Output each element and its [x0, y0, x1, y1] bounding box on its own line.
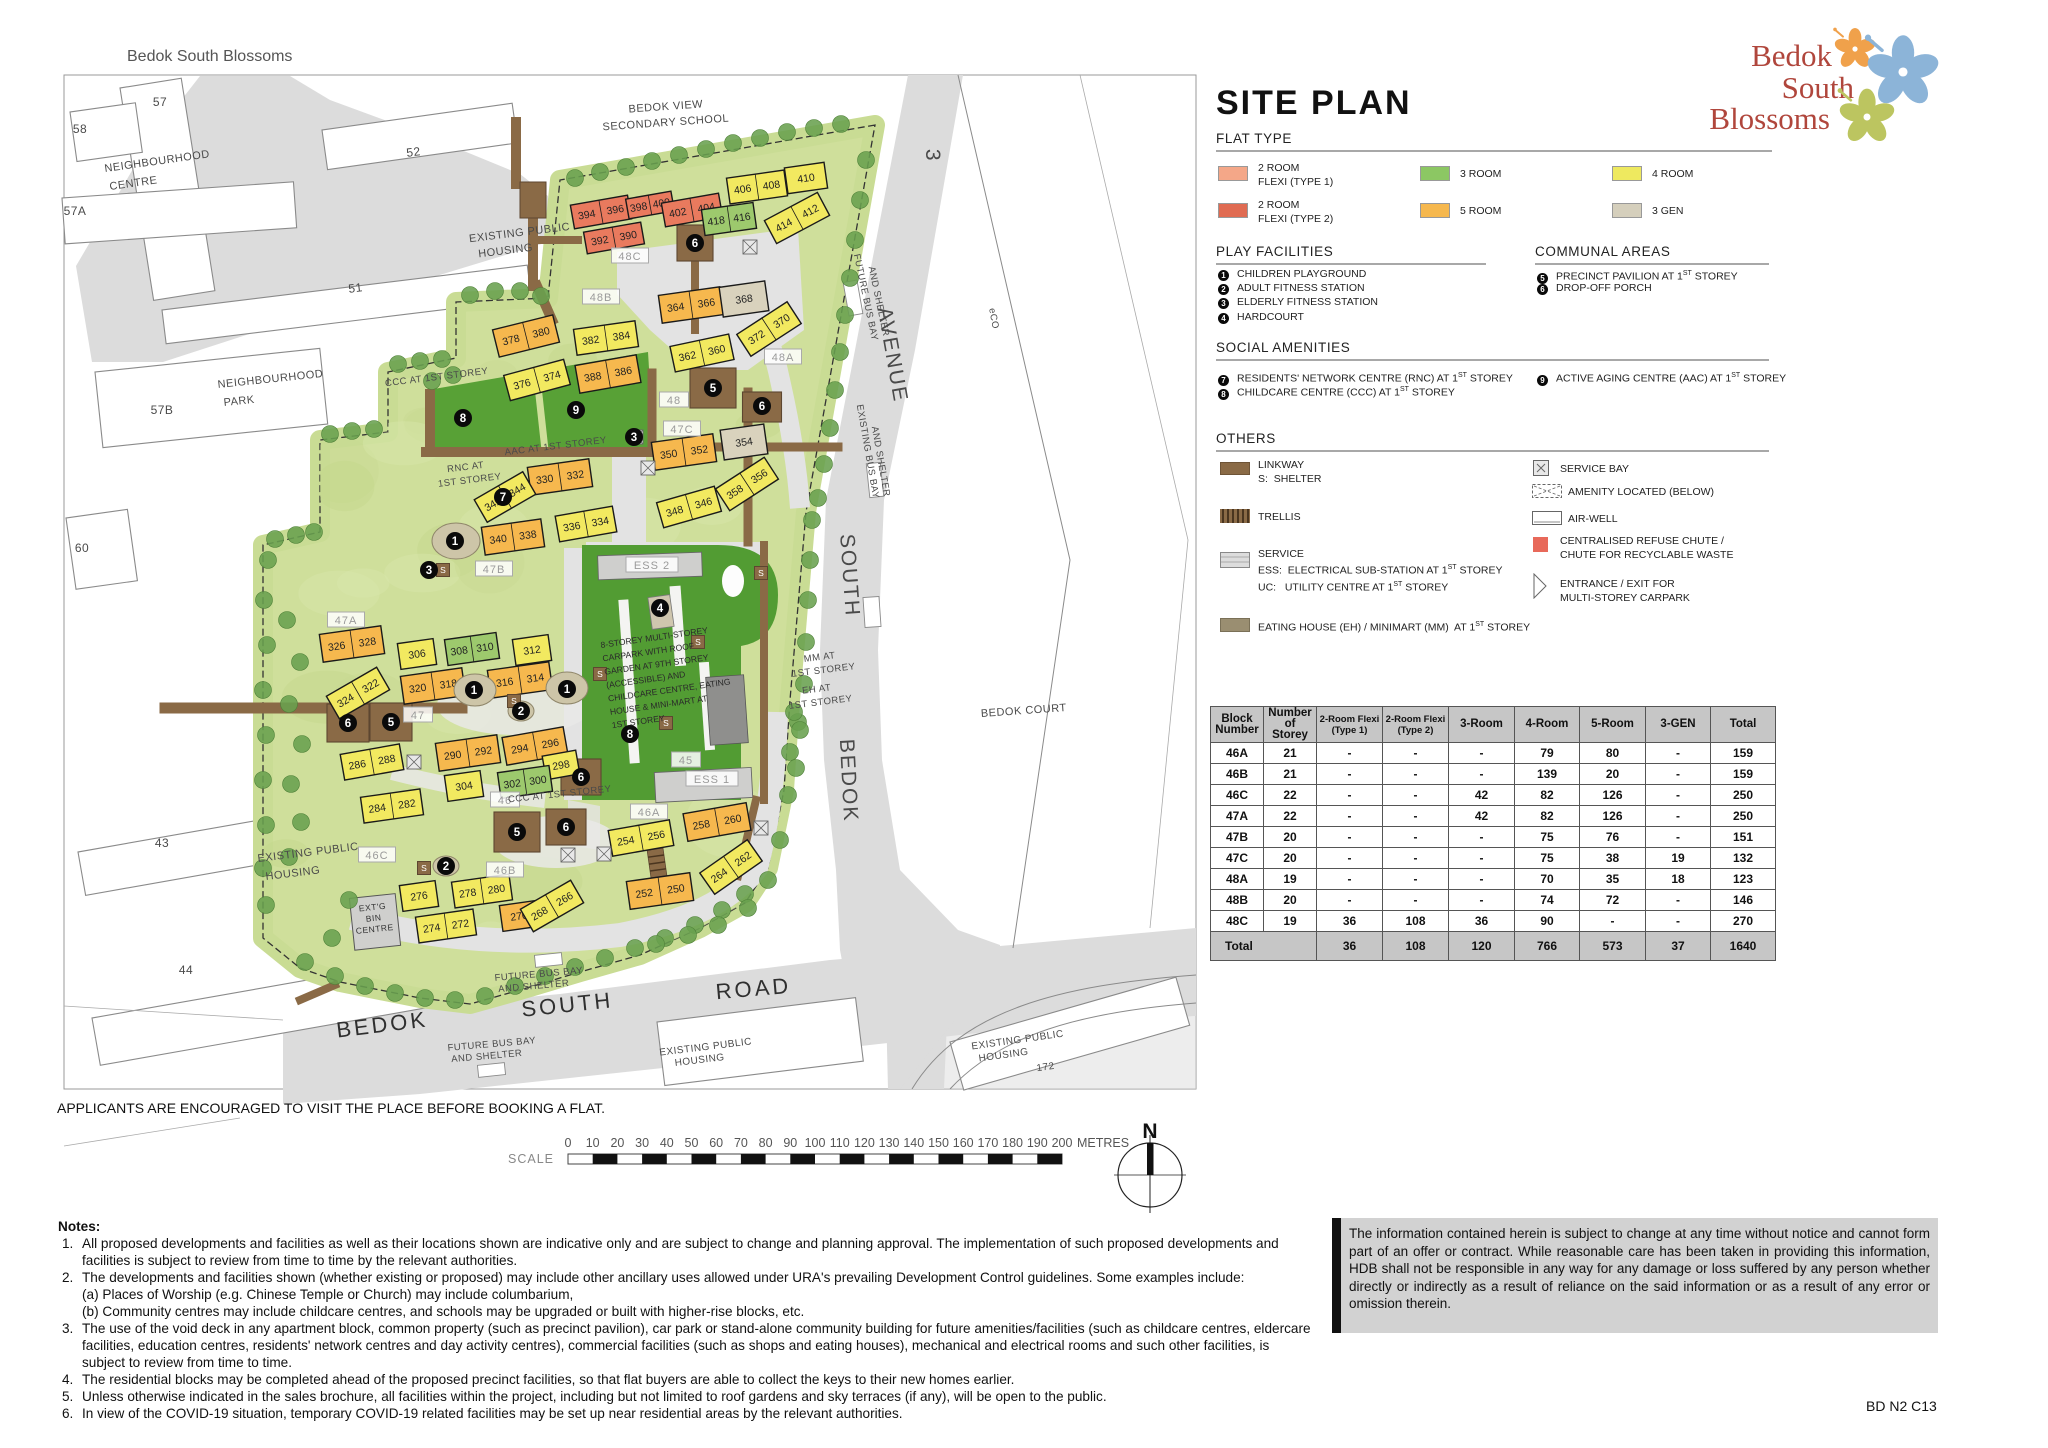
svg-text:330: 330: [535, 473, 554, 487]
svg-text:6: 6: [578, 772, 584, 784]
svg-text:BEDOK: BEDOK: [835, 738, 862, 823]
svg-text:7: 7: [500, 492, 506, 504]
svg-text:350: 350: [659, 448, 678, 462]
svg-text:80: 80: [759, 1136, 773, 1150]
svg-text:S: S: [597, 669, 603, 679]
svg-text:9: 9: [573, 405, 579, 417]
svg-text:8: 8: [627, 729, 634, 741]
svg-text:48C: 48C: [618, 251, 641, 263]
svg-text:44: 44: [179, 963, 193, 977]
svg-text:5: 5: [710, 383, 717, 395]
svg-text:90: 90: [783, 1136, 797, 1150]
svg-text:60: 60: [709, 1136, 723, 1150]
svg-text:20: 20: [610, 1136, 624, 1150]
svg-text:46A: 46A: [638, 807, 661, 819]
svg-text:47: 47: [411, 710, 425, 722]
svg-text:S: S: [758, 568, 764, 578]
svg-text:ESS 2: ESS 2: [634, 560, 670, 572]
svg-text:45: 45: [679, 755, 693, 767]
svg-text:1: 1: [452, 536, 459, 548]
svg-text:0: 0: [565, 1136, 572, 1150]
svg-text:1: 1: [564, 684, 571, 696]
svg-text:2: 2: [443, 861, 449, 873]
svg-text:5: 5: [388, 717, 395, 729]
svg-text:48A: 48A: [772, 352, 795, 364]
svg-text:47B: 47B: [483, 564, 506, 576]
svg-text:2: 2: [518, 706, 524, 718]
svg-text:306: 306: [408, 647, 427, 661]
svg-text:278: 278: [458, 887, 477, 901]
svg-text:190: 190: [1027, 1136, 1048, 1150]
svg-text:5: 5: [514, 827, 521, 839]
svg-text:368: 368: [735, 292, 754, 306]
svg-text:290: 290: [443, 749, 462, 763]
svg-text:S: S: [440, 565, 446, 575]
svg-text:3: 3: [631, 432, 637, 444]
svg-text:52: 52: [406, 144, 422, 160]
svg-text:46B: 46B: [494, 865, 517, 877]
svg-text:382: 382: [581, 334, 600, 348]
svg-text:282: 282: [397, 797, 416, 811]
svg-text:354: 354: [735, 435, 754, 449]
svg-text:50: 50: [685, 1136, 699, 1150]
svg-text:276: 276: [410, 889, 429, 903]
svg-text:BIN: BIN: [365, 912, 382, 924]
svg-text:310: 310: [475, 641, 494, 655]
svg-text:120: 120: [854, 1136, 875, 1150]
svg-text:304: 304: [455, 779, 474, 793]
svg-text:60: 60: [75, 541, 89, 555]
svg-text:S: S: [695, 637, 701, 647]
svg-text:332: 332: [566, 468, 585, 482]
svg-text:Bedok: Bedok: [1751, 38, 1832, 73]
svg-text:Blossoms: Blossoms: [1709, 101, 1830, 136]
svg-text:S: S: [421, 863, 427, 873]
svg-text:3: 3: [426, 565, 432, 577]
svg-text:47C: 47C: [670, 424, 693, 436]
svg-text:130: 130: [879, 1136, 900, 1150]
svg-text:312: 312: [523, 643, 542, 657]
svg-text:SCALE: SCALE: [508, 1152, 554, 1166]
svg-text:6: 6: [345, 718, 351, 730]
svg-text:47A: 47A: [335, 615, 358, 627]
svg-text:364: 364: [666, 301, 685, 315]
svg-text:250: 250: [666, 882, 685, 896]
svg-text:4: 4: [657, 603, 664, 615]
svg-text:48B: 48B: [590, 292, 613, 304]
svg-text:150: 150: [928, 1136, 949, 1150]
svg-text:326: 326: [327, 640, 346, 654]
svg-text:366: 366: [697, 296, 716, 310]
svg-text:280: 280: [487, 882, 506, 896]
svg-text:338: 338: [518, 528, 537, 542]
svg-text:70: 70: [734, 1136, 748, 1150]
svg-text:10: 10: [586, 1136, 600, 1150]
svg-text:308: 308: [450, 644, 469, 658]
svg-text:200: 200: [1052, 1136, 1073, 1150]
svg-text:6: 6: [692, 238, 698, 250]
svg-text:6: 6: [759, 401, 765, 413]
svg-text:46C: 46C: [365, 850, 388, 862]
svg-text:272: 272: [451, 917, 470, 931]
svg-text:30: 30: [635, 1136, 649, 1150]
svg-text:6: 6: [563, 822, 569, 834]
svg-text:ESS 1: ESS 1: [694, 774, 730, 786]
svg-text:418: 418: [707, 214, 726, 228]
svg-text:100: 100: [805, 1136, 826, 1150]
svg-text:57A: 57A: [64, 204, 87, 218]
svg-text:302: 302: [503, 777, 522, 791]
svg-text:170: 170: [977, 1136, 998, 1150]
svg-text:274: 274: [422, 922, 441, 936]
svg-text:328: 328: [358, 635, 377, 649]
svg-text:352: 352: [690, 443, 709, 457]
svg-text:57B: 57B: [151, 403, 174, 417]
svg-text:1: 1: [471, 685, 478, 697]
svg-text:110: 110: [830, 1136, 850, 1150]
svg-text:384: 384: [612, 329, 631, 343]
svg-text:180: 180: [1002, 1136, 1023, 1150]
svg-text:METRES: METRES: [1077, 1136, 1129, 1150]
svg-text:340: 340: [489, 533, 508, 547]
svg-text:410: 410: [797, 171, 816, 185]
svg-text:48: 48: [667, 395, 681, 407]
svg-text:292: 292: [474, 744, 493, 758]
svg-text:South: South: [1782, 70, 1855, 105]
svg-text:300: 300: [528, 774, 547, 788]
svg-text:40: 40: [660, 1136, 674, 1150]
svg-text:406: 406: [733, 183, 752, 197]
svg-text:316: 316: [495, 676, 514, 690]
svg-text:160: 160: [953, 1136, 974, 1150]
svg-text:314: 314: [526, 671, 545, 685]
svg-text:416: 416: [732, 211, 751, 225]
svg-text:51: 51: [348, 280, 364, 296]
svg-text:252: 252: [635, 887, 654, 901]
svg-text:3: 3: [921, 149, 944, 161]
svg-text:8: 8: [460, 413, 467, 425]
svg-text:58: 58: [73, 122, 87, 136]
svg-text:320: 320: [408, 682, 427, 696]
svg-text:N: N: [1142, 1120, 1157, 1143]
svg-text:284: 284: [368, 802, 387, 816]
svg-text:57: 57: [153, 95, 167, 109]
svg-text:140: 140: [903, 1136, 924, 1150]
svg-text:43: 43: [155, 836, 169, 850]
svg-text:408: 408: [762, 178, 781, 192]
